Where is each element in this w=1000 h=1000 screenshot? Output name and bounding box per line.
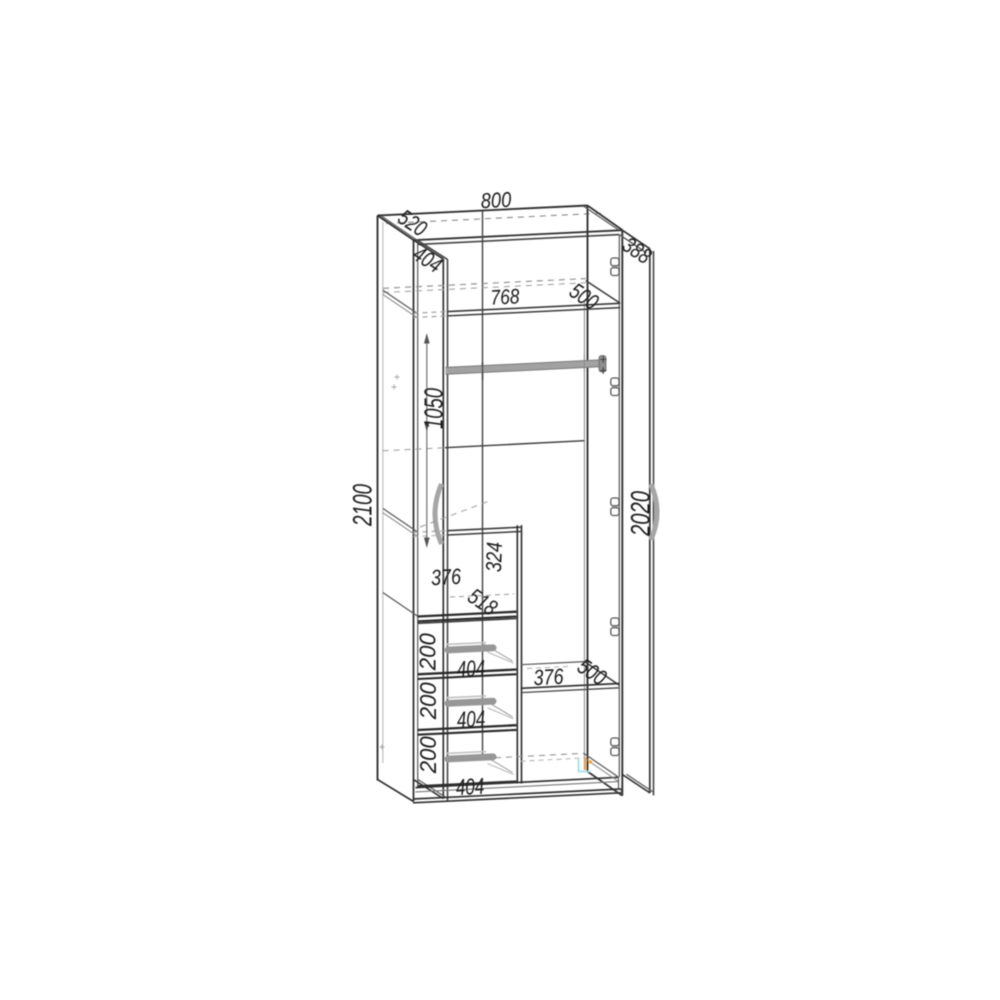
svg-text:2020: 2020 [626,491,656,537]
svg-text:376: 376 [533,664,565,691]
svg-text:376: 376 [430,564,462,591]
svg-text:404: 404 [456,705,486,732]
svg-text:200: 200 [415,633,441,671]
svg-text:800: 800 [480,188,512,214]
svg-text:520: 520 [393,205,431,242]
svg-text:404: 404 [456,655,486,682]
svg-text:200: 200 [415,736,441,774]
svg-text:404: 404 [455,773,485,800]
svg-text:2100: 2100 [348,484,378,527]
svg-text:200: 200 [415,682,441,720]
svg-text:768: 768 [490,285,520,309]
svg-text:324: 324 [481,542,507,573]
svg-text:518: 518 [463,583,502,620]
svg-text:1050: 1050 [419,388,449,429]
